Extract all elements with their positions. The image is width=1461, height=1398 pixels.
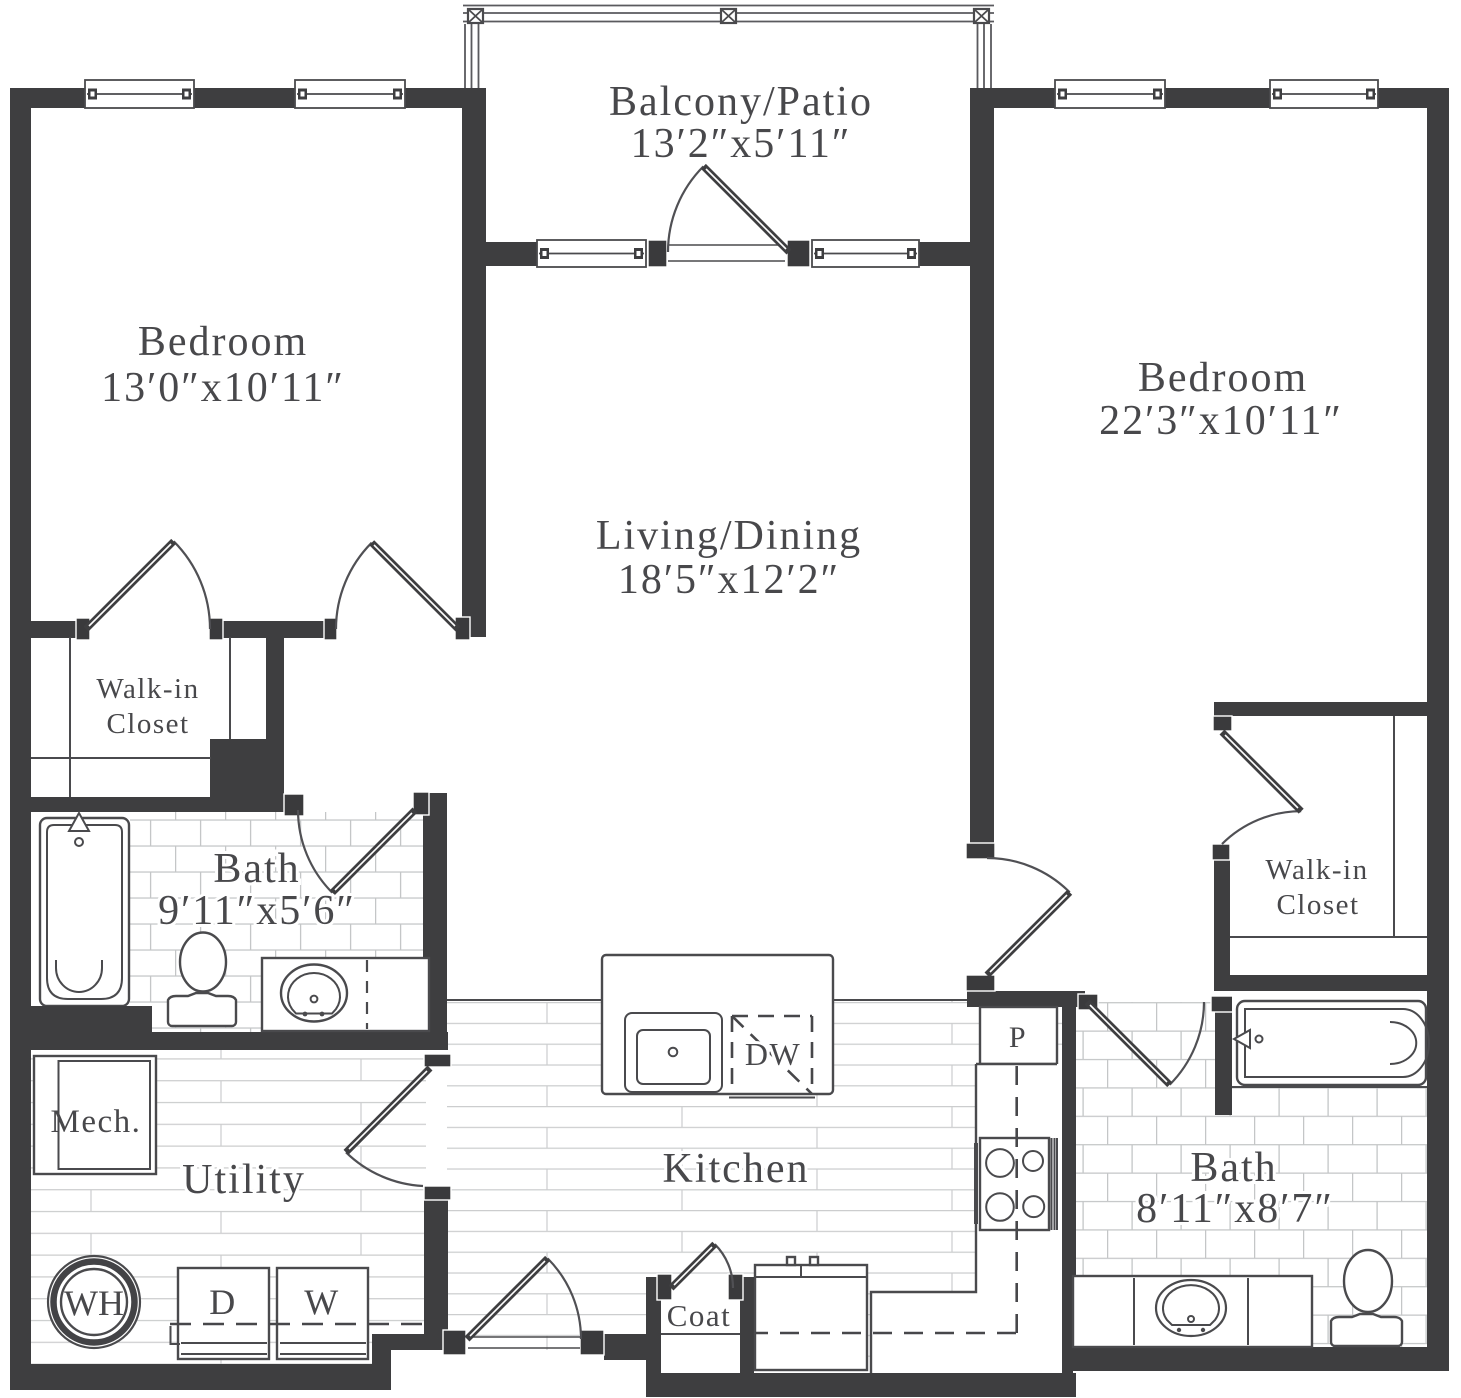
- svg-text:Living/Dining: Living/Dining: [596, 513, 862, 559]
- svg-text:Bedroom: Bedroom: [1138, 355, 1308, 401]
- svg-text:13′2″x5′11″: 13′2″x5′11″: [631, 121, 852, 167]
- svg-text:W: W: [304, 1282, 339, 1322]
- svg-text:9′11″x5′6″: 9′11″x5′6″: [158, 888, 356, 934]
- svg-text:Walk-in: Walk-in: [96, 673, 199, 705]
- svg-text:Closet: Closet: [106, 708, 189, 740]
- svg-text:Kitchen: Kitchen: [663, 1146, 810, 1192]
- svg-text:Bath: Bath: [213, 846, 300, 892]
- svg-text:8′11″x8′7″: 8′11″x8′7″: [1136, 1186, 1334, 1232]
- svg-text:Coat: Coat: [667, 1298, 732, 1333]
- svg-text:Closet: Closet: [1276, 889, 1359, 921]
- svg-text:Balcony/Patio: Balcony/Patio: [609, 79, 873, 125]
- svg-text:Mech.: Mech.: [51, 1104, 142, 1140]
- svg-text:D: D: [209, 1282, 237, 1322]
- svg-text:WH: WH: [64, 1283, 124, 1323]
- svg-text:Walk-in: Walk-in: [1265, 854, 1368, 886]
- svg-text:18′5″x12′2″: 18′5″x12′2″: [618, 557, 840, 603]
- svg-text:P: P: [1009, 1021, 1027, 1054]
- svg-text:DW: DW: [745, 1036, 801, 1072]
- svg-text:Bath: Bath: [1190, 1145, 1277, 1191]
- svg-text:22′3″x10′11″: 22′3″x10′11″: [1099, 398, 1343, 444]
- svg-text:Utility: Utility: [182, 1157, 306, 1203]
- svg-text:13′0″x10′11″: 13′0″x10′11″: [101, 365, 345, 411]
- svg-text:Bedroom: Bedroom: [138, 319, 308, 365]
